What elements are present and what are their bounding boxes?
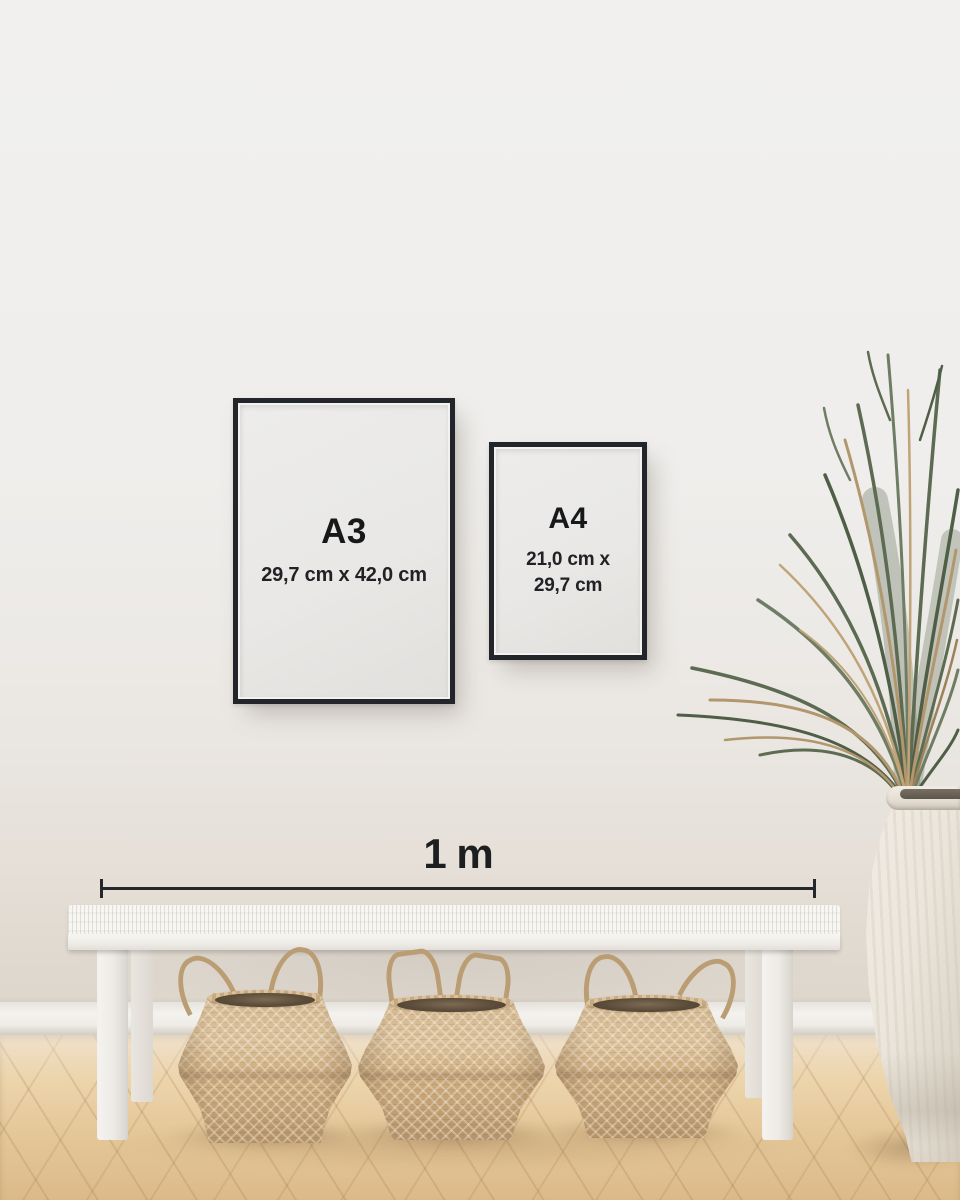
frame-a3-paper: A3 29,7 cm x 42,0 cm xyxy=(238,403,450,699)
basket-opening xyxy=(593,998,699,1012)
seagrass-basket-right xyxy=(555,998,738,1138)
vase-opening xyxy=(900,789,960,799)
frame-a4: A4 21,0 cm x 29,7 cm xyxy=(489,442,647,660)
basket-body xyxy=(555,998,738,1138)
scale-label: 1 m xyxy=(102,830,814,878)
basket-opening xyxy=(215,993,316,1007)
scale-ruler-tick-right xyxy=(813,879,816,898)
bench-front-rail xyxy=(68,934,840,950)
seagrass-basket-left xyxy=(178,993,352,1143)
basket-body xyxy=(358,998,545,1140)
frame-a4-dimensions-line2: 29,7 cm xyxy=(526,573,610,598)
basket-body xyxy=(178,993,352,1143)
seagrass-basket-middle xyxy=(358,998,545,1140)
frame-a3-size-label: A3 xyxy=(321,514,367,549)
scale-ruler-line xyxy=(102,887,814,890)
room-scene: A3 29,7 cm x 42,0 cm A4 21,0 cm x 29,7 c… xyxy=(0,0,960,1200)
frame-a4-paper: A4 21,0 cm x 29,7 cm xyxy=(494,447,642,655)
bench-leg-front-right xyxy=(762,946,793,1140)
palm-plant xyxy=(640,300,960,820)
frame-a4-dimensions-line1: 21,0 cm x xyxy=(526,547,610,572)
frame-a3-dimensions: 29,7 cm x 42,0 cm xyxy=(261,562,427,588)
bench-leg-front-left xyxy=(97,946,128,1140)
scale-ruler-tick-left xyxy=(100,879,103,898)
frame-a4-size-label: A4 xyxy=(548,504,587,534)
bench-leg-rear-left xyxy=(131,946,153,1102)
frame-a3: A3 29,7 cm x 42,0 cm xyxy=(233,398,455,704)
basket-opening xyxy=(397,998,505,1012)
frame-a4-dimensions: 21,0 cm x 29,7 cm xyxy=(526,547,610,597)
